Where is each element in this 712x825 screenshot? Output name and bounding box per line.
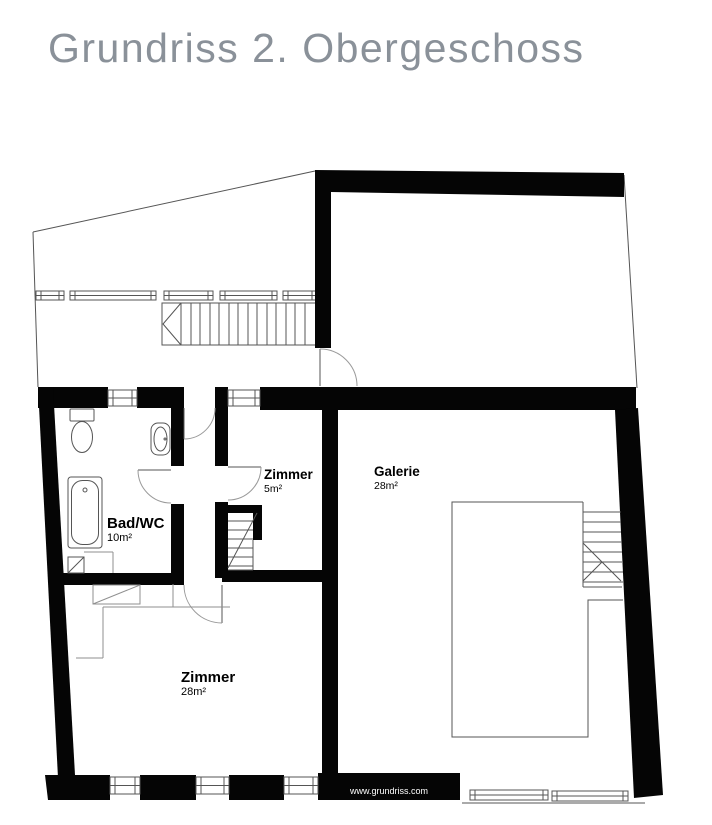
window: [284, 777, 318, 794]
small-stair-wall: [253, 505, 262, 540]
window: [110, 777, 140, 794]
window: [196, 777, 229, 794]
shaft-icon: [68, 557, 84, 573]
railing-segment: [552, 791, 628, 801]
roof-slope-line: [33, 171, 315, 232]
galerie-railing: [462, 790, 645, 803]
staircase-galerie: [583, 502, 623, 587]
room-area-galerie: 28m²: [374, 480, 398, 492]
door-zimmer-large: [184, 585, 222, 623]
room-area-zimmer-large: 28m²: [181, 686, 206, 698]
railing-segment: [220, 291, 277, 300]
attic-railing: [36, 291, 317, 300]
room-area-zimmer-small: 5m²: [264, 483, 283, 495]
room-label-zimmer-large: Zimmer: [181, 669, 235, 686]
ceiling-slope-line: [84, 552, 113, 573]
right-outer-wall: [615, 408, 663, 798]
floor-plan: Grundriss 2. Obergeschoss: [0, 0, 712, 825]
top-right-room-wall: [315, 170, 624, 348]
galerie-left-wall: [322, 408, 338, 773]
bottom-wall-segment: [45, 775, 110, 800]
badwc-bottom-wall: [57, 573, 184, 585]
roof-outline: [33, 171, 637, 388]
watermark: www.grundriss.com: [349, 786, 428, 796]
right-roof-edge: [624, 175, 637, 388]
page-title: Grundriss 2. Obergeschoss: [48, 25, 585, 71]
room-label-zimmer-small: Zimmer: [264, 467, 314, 482]
railing-segment: [36, 291, 64, 300]
badwc-right-wall: [171, 408, 184, 466]
bottom-wall-segment: [229, 775, 284, 800]
sink-icon: [151, 423, 170, 455]
galerie-top-wall: [260, 387, 636, 410]
railing-segment: [470, 790, 548, 800]
walls: [38, 170, 663, 800]
staircase-small: [228, 513, 257, 570]
room-label-galerie: Galerie: [374, 464, 420, 479]
room-label-badwc: Bad/WC: [107, 515, 165, 532]
badwc-right-wall: [171, 504, 184, 575]
window: [108, 390, 137, 406]
main-wall-segment: [137, 387, 184, 408]
main-wall-segment: [215, 387, 228, 408]
door-top-right-room: [320, 349, 357, 386]
corridor-right-wall: [215, 408, 228, 466]
staircase-hall: [162, 303, 317, 345]
railing-segment: [283, 291, 317, 300]
window: [228, 390, 260, 406]
zimmer5-bottom-wall: [222, 570, 338, 582]
left-roof-edge: [33, 232, 38, 387]
door-zimmer-small: [228, 467, 261, 500]
toilet-icon: [70, 409, 94, 453]
bottom-wall-segment: [140, 775, 196, 800]
corridor-right-wall: [215, 502, 228, 578]
door-badwc: [138, 470, 171, 503]
bathroom-fixtures: [68, 409, 170, 573]
railing-segment: [164, 291, 213, 300]
galerie-void: [452, 502, 623, 737]
bathtub-icon: [68, 477, 102, 548]
ceiling-slope-lines: [76, 584, 230, 658]
stair-break-chevron: [163, 303, 181, 345]
room-area-badwc: 10m²: [107, 532, 132, 544]
door-corridor-top: [184, 408, 215, 439]
railing-segment: [70, 291, 156, 300]
